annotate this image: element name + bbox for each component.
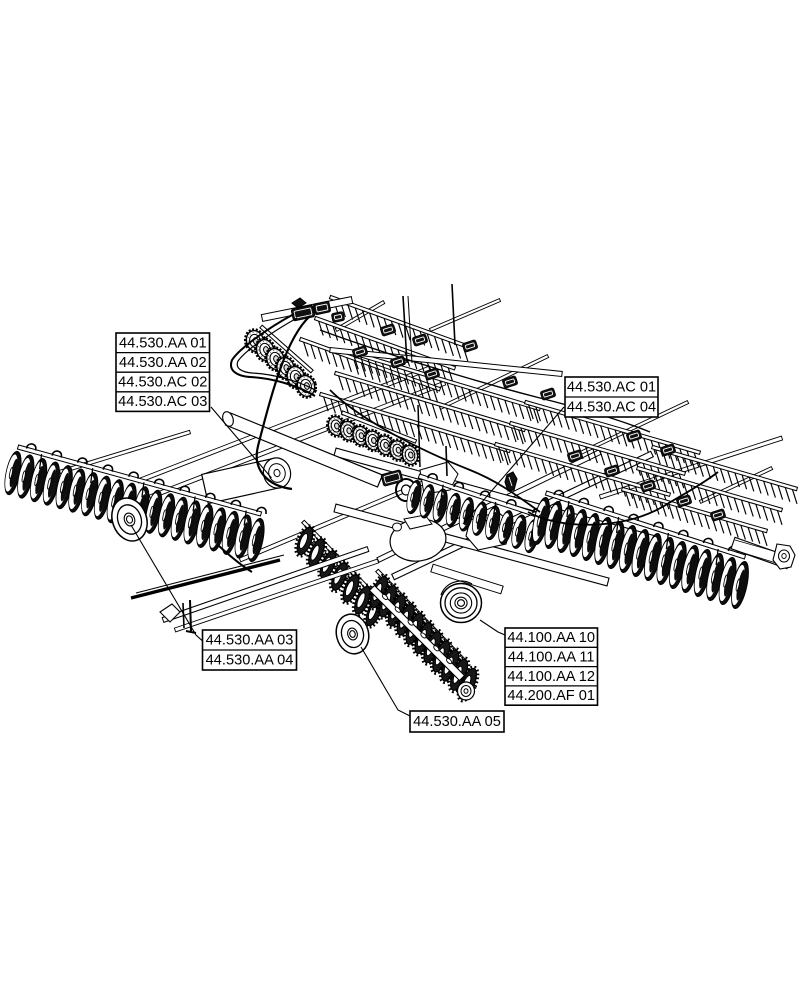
svg-text:44.530.AC 03: 44.530.AC 03: [118, 394, 207, 410]
svg-text:44.530.AA 01: 44.530.AA 01: [119, 335, 207, 351]
svg-text:44.200.AF 01: 44.200.AF 01: [507, 688, 595, 704]
svg-text:44.530.AA 03: 44.530.AA 03: [206, 633, 294, 649]
svg-text:44.100.AA 12: 44.100.AA 12: [507, 669, 595, 685]
svg-text:44.100.AA 11: 44.100.AA 11: [508, 649, 595, 665]
svg-text:44.530.AC 01: 44.530.AC 01: [567, 380, 656, 396]
svg-text:44.100.AA 10: 44.100.AA 10: [507, 630, 595, 646]
svg-text:44.530.AC 04: 44.530.AC 04: [567, 400, 656, 416]
svg-text:44.530.AA 05: 44.530.AA 05: [413, 714, 501, 730]
svg-text:44.530.AA 02: 44.530.AA 02: [119, 355, 207, 371]
svg-text:44.530.AC 02: 44.530.AC 02: [118, 375, 207, 391]
svg-text:44.530.AA 04: 44.530.AA 04: [206, 653, 294, 669]
